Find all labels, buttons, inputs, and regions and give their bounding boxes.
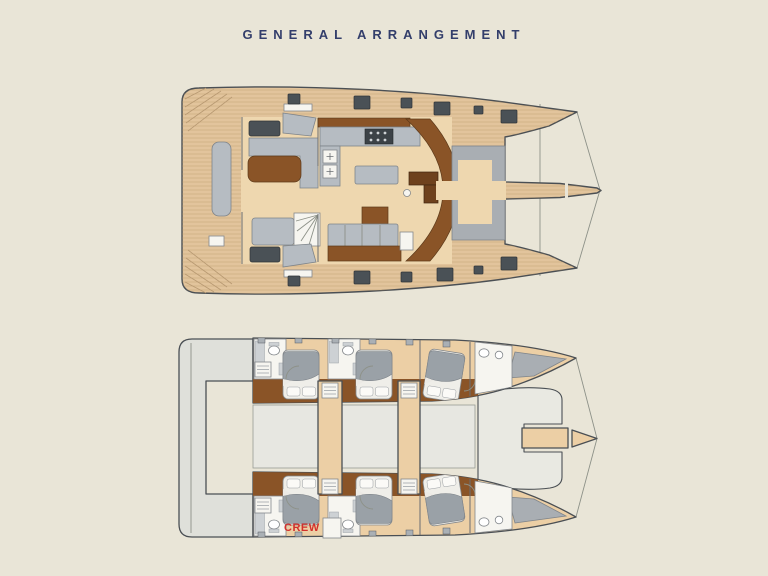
liferaft-locker: [284, 104, 312, 111]
nav-desk: [424, 185, 438, 203]
lower-deck-plan: CREW: [179, 337, 597, 538]
cockpit-cushion: [250, 247, 280, 262]
salon-sofa: [328, 224, 398, 247]
cockpit-seat: [252, 218, 294, 245]
aft-locker: [209, 236, 224, 246]
foredeck-lounge: [458, 160, 492, 224]
boat-plans-svg: CREW: [0, 0, 768, 576]
spiral-staircase: [294, 213, 320, 246]
crew-label: CREW: [284, 522, 320, 534]
transom-door: [323, 518, 341, 538]
galley-cabinet: [318, 118, 410, 127]
helm-seat: [404, 190, 411, 197]
bridge-deck-floor: [253, 405, 475, 468]
island-counter: [355, 166, 398, 184]
aft-bench: [212, 142, 231, 216]
aft-swim-platform: [179, 339, 253, 537]
main-deck-plan: [182, 87, 601, 294]
stove-icon: [365, 129, 393, 144]
bowsprit-tip: [572, 430, 597, 447]
cockpit-table: [248, 156, 301, 182]
side-table: [400, 232, 413, 250]
cockpit-cushion: [249, 121, 280, 136]
bowsprit: [522, 428, 568, 448]
sideboard: [362, 207, 388, 224]
bowsprit-joint: [565, 181, 568, 200]
salon-sofa-base: [328, 246, 401, 261]
general-arrangement-diagram: GENERAL ARRANGEMENT: [0, 0, 768, 576]
nav-desk: [409, 172, 438, 185]
